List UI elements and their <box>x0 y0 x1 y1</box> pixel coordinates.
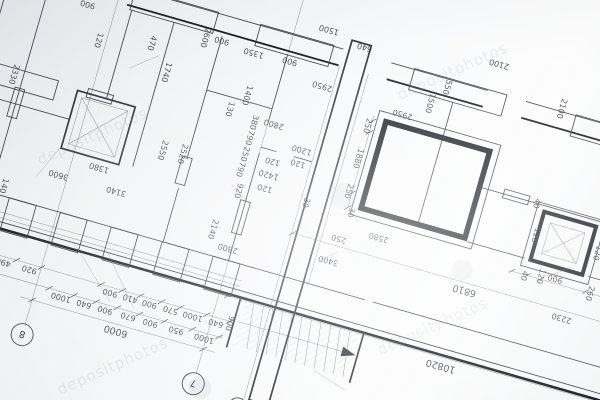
dimension-label: 1350 <box>243 46 265 60</box>
dimension-label: 120 <box>92 32 105 49</box>
watermark-text: depositphotos <box>54 334 170 399</box>
dimension-label: 40 <box>519 270 530 282</box>
dimension-label: 3140 <box>105 184 127 198</box>
dim-line-6000 <box>21 297 215 353</box>
dimension-label: 570 <box>162 304 179 317</box>
dimension-label: 380 <box>248 114 261 131</box>
pier <box>153 242 189 282</box>
dimension-label: 2230 <box>551 311 573 325</box>
pier <box>204 256 240 296</box>
dimension-label: 900 <box>97 304 114 317</box>
dimension-label: 2580 <box>368 231 390 245</box>
dimension-label: 120 <box>289 157 306 170</box>
dimension-label: 900 <box>101 286 118 299</box>
dimension-label: 2550 <box>156 139 170 161</box>
dimension-label: 2140 <box>206 218 220 240</box>
dimension-label: 30 <box>300 197 311 209</box>
dimension-label: 120 <box>264 155 281 168</box>
dimension-label: 900 <box>281 55 298 68</box>
dimension-label: 120 <box>529 227 542 244</box>
rotated-plan-layer: 8 7 <box>0 0 600 400</box>
floor-plan-drawing: 8 7 <box>0 0 600 400</box>
dimension-label: 790 <box>243 129 256 146</box>
dimension-label: 900 <box>142 317 159 330</box>
dimension-label: 250 <box>239 145 252 162</box>
dimension-label: 1200 <box>291 143 313 157</box>
dim-chain-line-inner <box>0 236 232 322</box>
dimension-label: 130 <box>223 101 236 118</box>
dimension-label: 490 <box>0 256 12 269</box>
dimension-label: 900 <box>79 0 96 11</box>
dimension-label: 1000 <box>193 331 215 345</box>
grid-bubble-8-label: 8 <box>18 328 27 340</box>
blueprint-photo: 8 7 <box>0 0 600 400</box>
dimension-label: 410 <box>122 292 139 305</box>
dimension-label: 2950 <box>392 107 414 121</box>
elevator-shaft-2 <box>521 202 600 285</box>
dimension-label: 900 <box>141 298 158 311</box>
dimension-label: 120 <box>256 182 273 195</box>
dimension-label: 1420 <box>258 168 280 182</box>
dimension-label: 900 <box>547 272 564 285</box>
grid-bubble-partial <box>226 396 248 400</box>
dimension-label: 1500 <box>423 92 437 114</box>
dimension-label: 920 <box>21 263 38 276</box>
watermark-text: depositphotos <box>374 294 490 359</box>
dimension-label: 950 <box>168 324 185 337</box>
dimension-label: 790 <box>234 161 247 178</box>
dimension-label: 2950 <box>311 79 333 93</box>
dimension-label: 640 <box>75 298 92 311</box>
dimension-label: 1500 <box>318 23 340 37</box>
dimension-label: 1000 <box>182 309 204 323</box>
dimension-label: 1000 <box>50 290 72 304</box>
pier <box>0 198 36 238</box>
elevator-x-mark <box>542 223 585 264</box>
dimension-label: 6810 <box>451 282 477 299</box>
dimension-label: 2520 <box>176 143 190 165</box>
dimension-label: 6000 <box>103 322 129 339</box>
dimension-label: 2100 <box>555 98 569 120</box>
dimension-label: 140 <box>0 177 10 194</box>
dimension-label: 2800 <box>217 241 239 255</box>
watermark-text: depositphotos <box>394 39 510 104</box>
dimension-label: 640 <box>356 41 373 54</box>
dimension-label: 3600 <box>48 168 70 182</box>
dimension-label: 250 <box>361 117 374 134</box>
watermark-text: depositphotos <box>34 104 150 169</box>
grid-bubble-8: 8 <box>9 321 36 348</box>
door-lintel-bar <box>502 189 529 205</box>
dimension-label: 470 <box>146 35 159 52</box>
dimension-label: 3400 <box>317 254 339 268</box>
dimension-label: 900 <box>213 34 230 47</box>
dimension-label: 120 <box>534 268 547 285</box>
dimension-label: 260 <box>584 285 597 302</box>
dimension-label: 40 <box>531 197 542 209</box>
dimension-label: 640 <box>207 317 224 330</box>
pier <box>102 227 138 267</box>
dimension-label: 250 <box>330 232 347 245</box>
dimension-label: 900 <box>223 315 236 332</box>
dimension-label: 1380 <box>88 161 110 175</box>
dimension-label: 670 <box>120 310 137 323</box>
pier <box>51 212 87 252</box>
dimension-label: 1880 <box>351 147 365 169</box>
dimension-label: 920 <box>232 182 245 199</box>
